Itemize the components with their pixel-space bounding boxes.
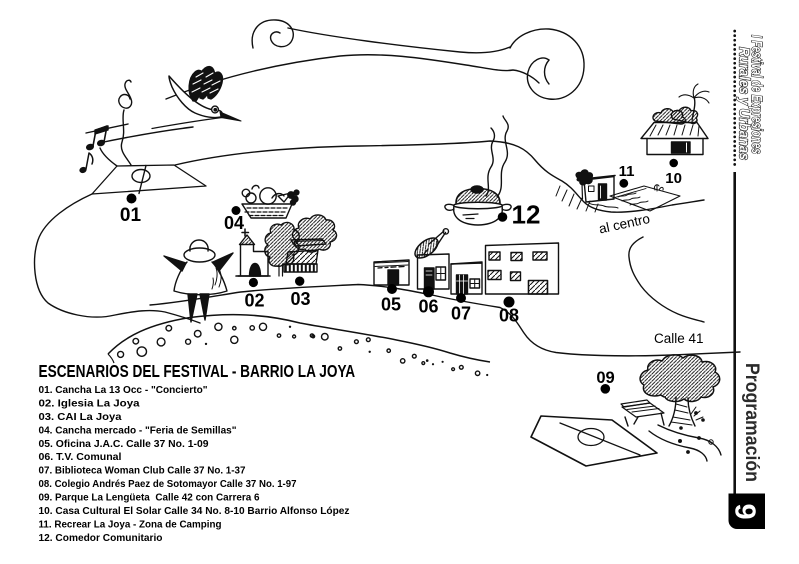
svg-text:9: 9 <box>729 503 761 519</box>
svg-text:12: 12 <box>512 200 541 230</box>
svg-text:05. Oficina J.A.C. Calle 37 No: 05. Oficina J.A.C. Calle 37 No. 1-09 <box>39 438 209 450</box>
svg-text:11. Recrear La Joya - Zona de: 11. Recrear La Joya - Zona de Camping <box>39 519 222 531</box>
svg-text:09: 09 <box>596 369 614 387</box>
svg-text:05: 05 <box>381 295 401 315</box>
svg-text:08. Colegio Andrés Paez de Sot: 08. Colegio Andrés Paez de Sotomayor Cal… <box>39 478 297 490</box>
svg-text:02. Iglesia La Joya: 02. Iglesia La Joya <box>39 397 140 409</box>
svg-text:08: 08 <box>499 306 519 326</box>
svg-text:al centro: al centro <box>598 211 652 236</box>
svg-text:06. T.V. Comunal: 06. T.V. Comunal <box>39 451 122 463</box>
svg-text:ESCENARIOS DEL FESTIVAL - BARR: ESCENARIOS DEL FESTIVAL - BARRIO LA JOYA <box>39 363 356 382</box>
svg-text:01. Cancha La 13 Occ - "Concie: 01. Cancha La 13 Occ - "Concierto" <box>39 384 208 396</box>
svg-text:03. CAI La Joya: 03. CAI La Joya <box>39 411 122 423</box>
svg-text:04: 04 <box>224 213 244 233</box>
svg-text:10: 10 <box>665 170 682 187</box>
svg-text:Rurales y Urbanas: Rurales y Urbanas <box>736 47 753 160</box>
svg-text:11: 11 <box>619 163 635 180</box>
svg-text:Calle 41: Calle 41 <box>654 331 704 346</box>
svg-text:03: 03 <box>290 289 310 309</box>
svg-text:Programación: Programación <box>741 363 762 482</box>
svg-text:06: 06 <box>418 297 438 317</box>
svg-text:07: 07 <box>451 304 471 324</box>
svg-text:09. Parque La Lengüeta Calle: 09. Parque La Lengüeta Calle 42 con Carr… <box>39 492 260 504</box>
svg-text:10. Casa Cultural El Solar Cal: 10. Casa Cultural El Solar Calle 34 No. … <box>39 505 350 517</box>
svg-text:12. Comedor Comunitario: 12. Comedor Comunitario <box>39 532 163 544</box>
svg-text:01: 01 <box>120 205 142 226</box>
svg-text:02: 02 <box>244 291 264 311</box>
svg-text:04. Cancha mercado - "Feria de: 04. Cancha mercado - "Feria de Semillas" <box>39 424 237 436</box>
svg-text:07. Biblioteca Woman Club Call: 07. Biblioteca Woman Club Calle 37 No. 1… <box>39 465 246 477</box>
